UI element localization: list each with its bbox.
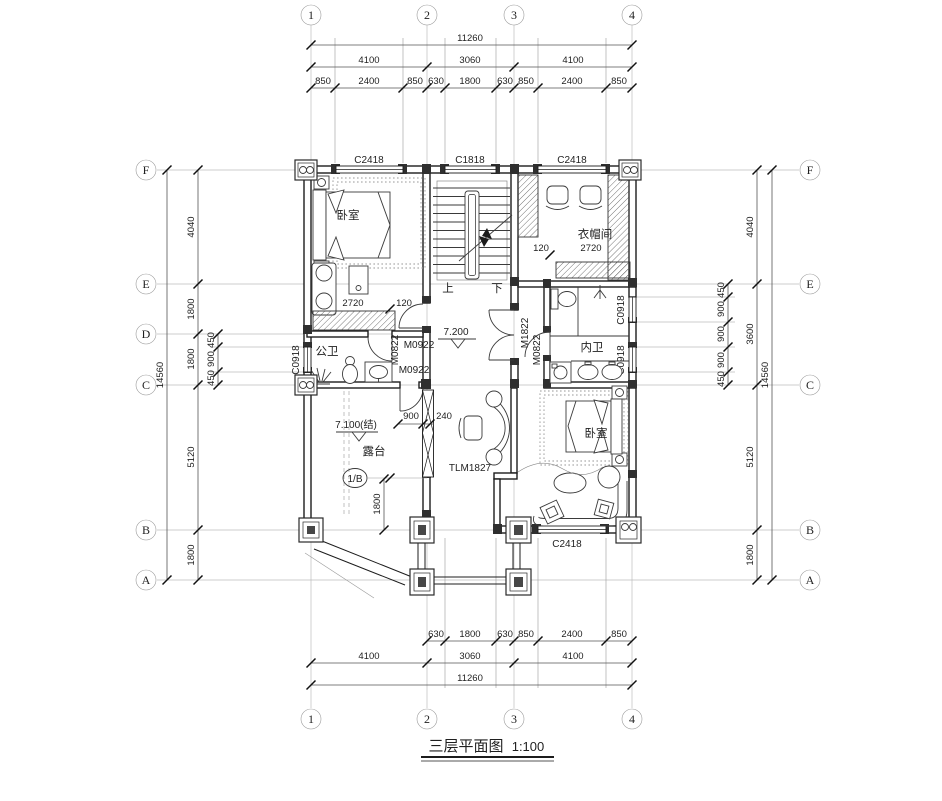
desk-chair [464,416,482,440]
window-c2418-top-left [336,166,403,173]
stair-down-label: 下 [491,283,503,295]
dim-right-major-2: 3600 [745,323,756,344]
dim-right-major-4: 1800 [745,544,756,565]
dim-top-minor-8: 2400 [561,76,582,87]
dim-bot-minor-4: 850 [518,629,534,640]
dim-left-major-2: 1800 [186,298,197,319]
dim-bot-minor-1: 630 [428,629,444,640]
sink [602,365,622,380]
side-table [349,266,368,294]
window-label-bottom: C2418 [552,539,582,550]
hall-level-marker: 7.200 [438,327,476,348]
grid-bubble-B-left: B [142,523,150,537]
nightstand [612,453,627,466]
room-label-bedroom-nw: 卧室 [337,208,360,222]
dim-bot-minor-3: 630 [497,629,513,640]
furniture-bedroom-se [518,386,628,526]
terrace-annotations: 7.100(结) 露台 1/B 1800 900 240 [335,411,452,535]
door-label-m0922-upper: M0922 [404,340,435,351]
dim-bot-minor-5: 2400 [561,629,582,640]
dim-bot-major-1: 4100 [358,651,379,662]
door-m1822-double [489,310,514,360]
dim-right-minor-1: 450 [716,282,727,298]
door-label-m0822-private: M0822 [532,334,543,365]
grid-bubble-B-right: B [806,523,814,537]
dim-right-minor-5: 450 [716,371,727,387]
pier-corner [295,160,317,180]
window-label-top-right: C2418 [557,155,587,166]
dim-top-minor-6: 630 [497,76,513,87]
title-text: 三层平面图 [428,738,503,755]
pier [410,569,434,595]
dim-top-minor-1: 850 [315,76,331,87]
door-label-m0822-public: M0822 [390,334,401,365]
dim-left-minor-2: 900 [206,351,217,367]
dim-bot-total: 11260 [457,673,483,684]
dim-top-minor-4: 630 [428,76,444,87]
window-c2418-top-right [538,166,606,173]
level-terrace: 7.100(结) [335,418,377,431]
door-label-m1822: M1822 [520,317,531,348]
dim-terrace-1800: 1800 [372,493,383,514]
dim-nw-120: 120 [396,298,412,309]
bed-headboard [313,190,326,260]
bed-headboard [611,399,622,454]
window-label-top-left: C2418 [354,155,384,166]
toilet-tank [551,289,558,309]
dim-left-major-1: 4040 [186,216,197,237]
dim-left-minor-1: 450 [206,332,217,348]
room-label-terrace: 露台 [363,444,386,458]
floor-plan-canvas: 1 2 3 4 1 2 3 4 F E D C B A F E C B A 11… [0,0,942,801]
pier [410,517,434,543]
dim-top-major-2: 3060 [459,55,480,66]
dim-top-minor-7: 850 [518,76,534,87]
dim-right-minor-2: 900 [716,301,727,317]
grid-bubble-col4-bottom: 4 [629,712,635,726]
grid-bubble-E-right: E [806,277,813,291]
window-c2418-bottom [538,526,606,533]
chair [547,186,568,204]
detail-marker-1B: 1/B [347,474,362,485]
dim-bot-major-2: 3060 [459,651,480,662]
furniture-bath-public [311,357,392,385]
dim-left-total: 14560 [155,362,166,388]
dim-terrace-240: 240 [436,411,452,422]
grid-bubble-col3-top: 3 [511,8,517,22]
title-scale: 1:100 [512,739,545,754]
door-m0822-public-bath [368,337,392,361]
dim-top-total: 11260 [457,33,483,44]
dim-right-major-1: 4040 [745,216,756,237]
dim-left-major-5: 1800 [186,544,197,565]
window-c0918-right-lower [629,347,636,372]
wardrobe [518,175,538,237]
stair-up-label: 上 [442,282,454,295]
room-label-bath-public: 公卫 [316,345,339,358]
grid-bubble-col2-top: 2 [424,8,430,22]
dim-left-major-3: 1800 [186,348,197,369]
chair [594,499,614,519]
staircase: 上 下 [433,181,512,295]
door-tlm1827-sliding [423,390,434,477]
dim-top-minor-2: 2400 [358,76,379,87]
dim-bot-minor-6: 850 [611,629,627,640]
dim-nw-2720: 2720 [342,298,363,309]
grid-bubble-D-left: D [142,327,151,341]
window-label-right-upper: C0918 [616,295,627,325]
chair [580,186,601,204]
dimensions-left: 14560 4040 1800 1800 5120 1800 450 900 4… [155,166,303,585]
pier [299,518,323,542]
dim-right-major-3: 5120 [745,446,756,467]
room-label-cloakroom: 衣帽间 [578,227,613,241]
window-c1818-top-mid [445,166,496,173]
drawing-title: 三层平面图 1:100 [421,738,554,761]
grid-bubble-F-left: F [143,163,150,177]
grid-bubble-C-left: C [142,378,150,392]
dim-right-minor-3: 900 [716,326,727,342]
grid-bubble-A-left: A [142,573,151,587]
window-c0918-right-upper [629,297,636,322]
rug-oval [554,473,586,493]
dim-top-major-3: 4100 [562,55,583,66]
grid-bubble-col1-top: 1 [308,8,314,22]
door-label-m0922-lower: M0922 [399,365,430,376]
pier-corner [295,375,317,395]
grid-bubble-col2-bottom: 2 [424,712,430,726]
dimensions-top: 11260 4100 3060 4100 850 2400 850 630 18… [307,33,637,163]
pier-corner [616,517,641,543]
grid-bubble-A-right: A [806,573,815,587]
grid-bubble-col1-bottom: 1 [308,712,314,726]
chair [540,500,564,524]
room-label-bedroom-se: 卧室 [585,426,608,440]
grid-lines [157,25,799,708]
pier [506,517,531,543]
dimensions-right: 450 900 900 900 450 4040 3600 5120 1800 … [637,166,777,585]
pier [506,569,531,595]
dim-top-minor-5: 1800 [459,76,480,87]
window-label-top-mid: C1818 [455,155,485,166]
room-label-bath-private: 内卫 [581,340,604,354]
grid-bubble-col3-bottom: 3 [511,712,517,726]
dim-terrace-900: 900 [403,411,419,422]
sink [578,365,598,380]
grid-bubble-E-left: E [142,277,149,291]
floor-plan-drawing: 1 2 3 4 1 2 3 4 F E D C B A F E C B A 11… [0,0,942,801]
door-m0922-terrace [400,388,423,411]
dim-ne-2720: 2720 [580,243,601,254]
dim-top-minor-9: 850 [611,76,627,87]
grid-bubble-C-right: C [806,378,814,392]
dimensions-bottom: 630 1800 630 850 2400 850 4100 3060 4100… [307,538,637,690]
toilet [558,292,576,307]
dim-bot-minor-2: 1800 [459,629,480,640]
grid-bubble-F-right: F [807,163,814,177]
shoe-cabinet [556,262,630,278]
level-hall: 7.200 [443,327,468,338]
pier-corner [619,160,641,180]
window-label-left: C0918 [291,345,302,375]
grid-bubble-col4-top: 4 [629,8,635,22]
door-label-tlm1827: TLM1827 [449,463,492,474]
dim-top-minor-3: 850 [407,76,423,87]
furniture-study [459,391,510,465]
dim-top-major-1: 4100 [358,55,379,66]
wardrobe [313,311,395,330]
dim-left-major-4: 5120 [186,446,197,467]
window-c0918-left [304,347,311,372]
washer [550,362,571,383]
dim-bot-major-3: 4100 [562,651,583,662]
dim-right-total: 14560 [760,362,771,388]
nightstand [612,386,627,399]
furniture-cloakroom [518,175,630,280]
dim-ne-120: 120 [533,243,549,254]
dim-right-minor-4: 900 [716,352,727,368]
dim-left-minor-3: 450 [206,370,217,386]
